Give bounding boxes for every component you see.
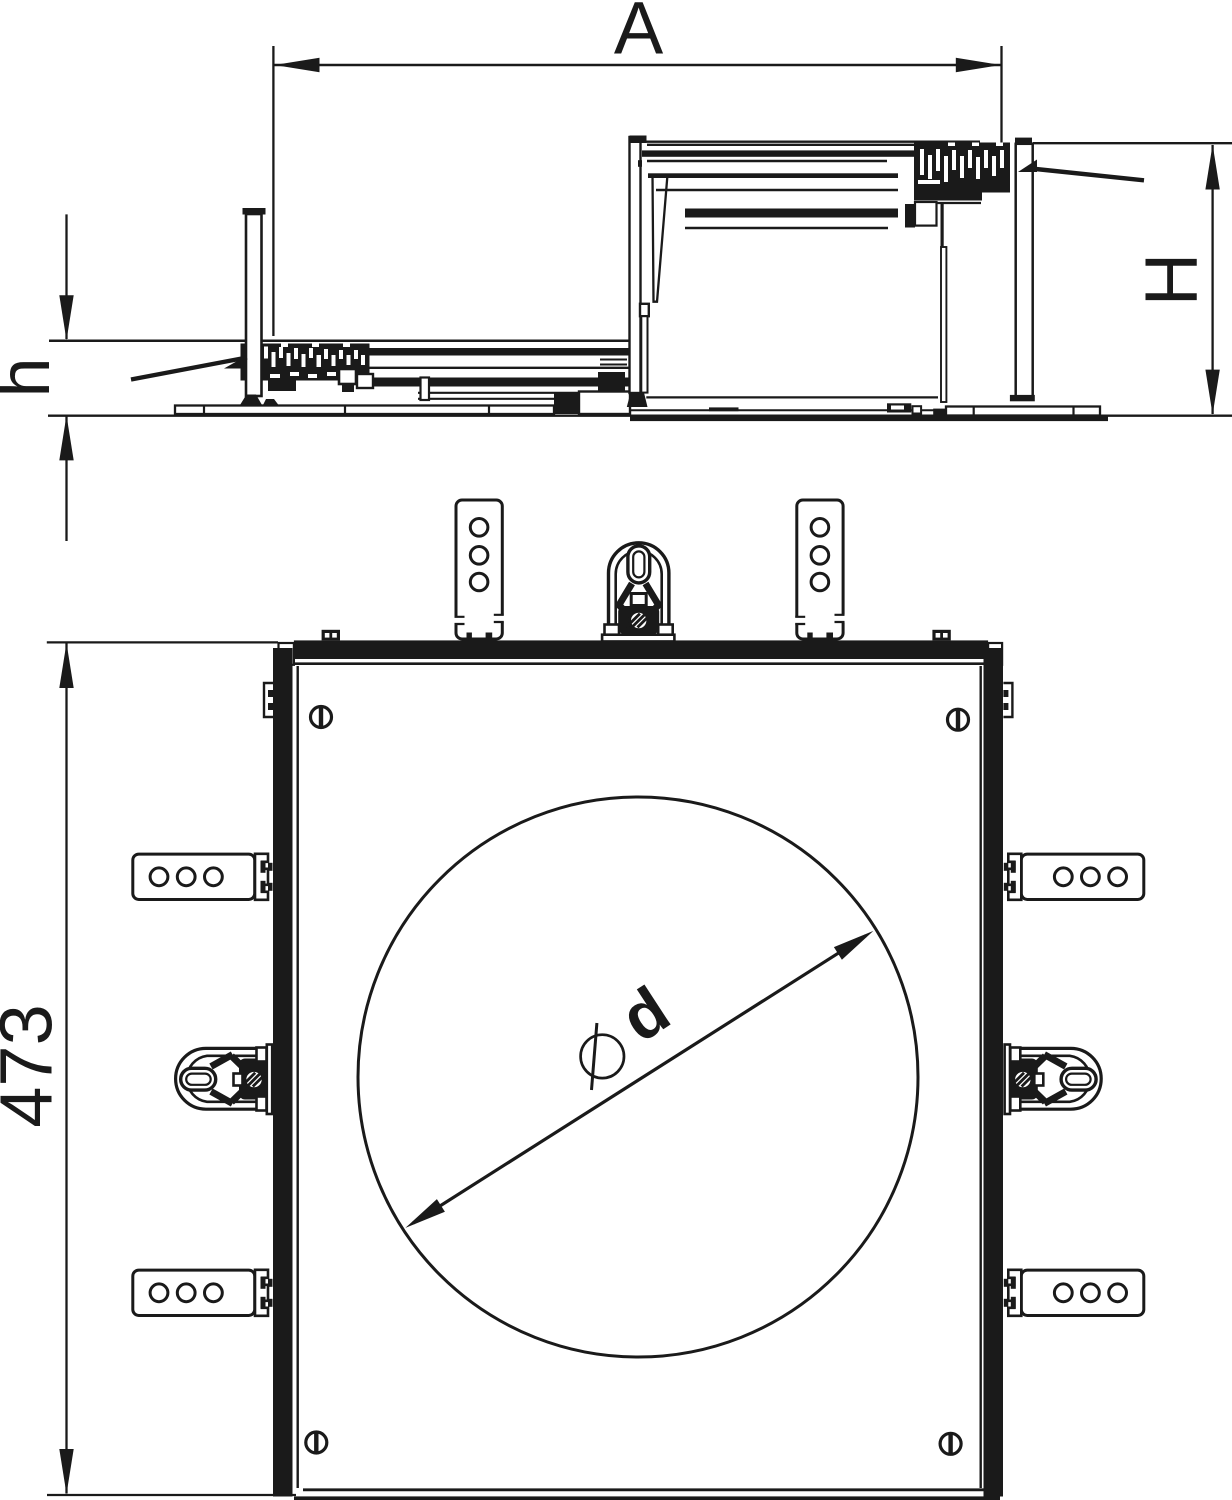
svg-text:473: 473 xyxy=(0,1004,68,1127)
svg-text:h: h xyxy=(0,357,65,397)
svg-text:A: A xyxy=(614,0,664,70)
svg-text:H: H xyxy=(1130,253,1213,306)
